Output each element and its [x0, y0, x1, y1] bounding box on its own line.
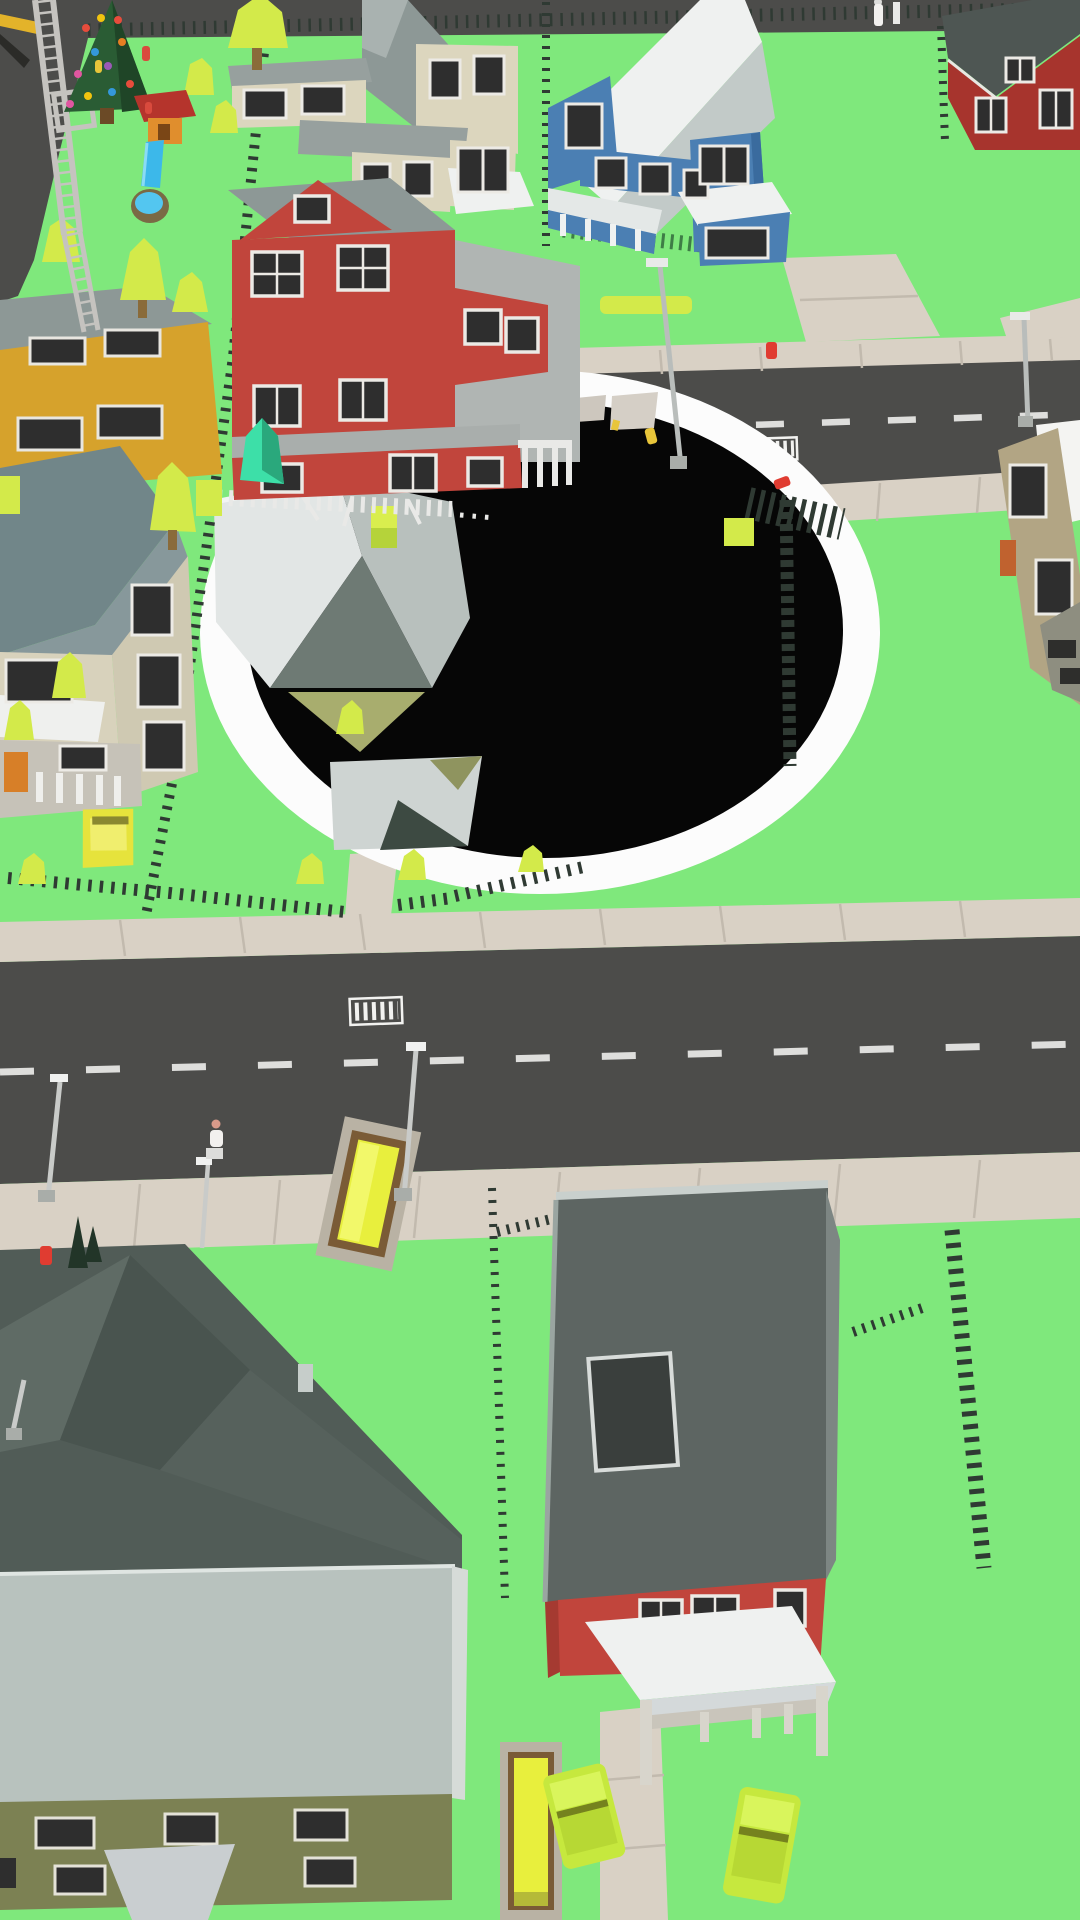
tree-trunk: [100, 108, 114, 124]
orange-door: [1000, 540, 1016, 576]
window: [144, 722, 184, 770]
hydrant-red: [766, 342, 777, 359]
roof-slab-light: [0, 1566, 455, 1806]
window: [105, 330, 160, 356]
yellow-car-parked: [77, 804, 139, 874]
window: [295, 1810, 347, 1840]
car-roof: [731, 1834, 788, 1884]
window: [430, 60, 460, 98]
lime-cube: [196, 480, 222, 516]
flatbed-truck-vertical: [500, 1742, 562, 1920]
window: [36, 1818, 94, 1848]
skylight: [588, 1353, 678, 1470]
window: [596, 158, 626, 188]
playhouse-door: [158, 124, 170, 140]
window: [1036, 560, 1072, 614]
tree-trunk: [138, 300, 147, 318]
person-yellow: [95, 60, 102, 73]
window: [30, 338, 85, 364]
white-post: [893, 2, 900, 24]
window: [566, 104, 602, 148]
window: [474, 56, 504, 94]
tree-trunk: [168, 530, 177, 550]
window: [244, 90, 286, 118]
roof-main: [545, 1188, 828, 1602]
window: [1010, 465, 1046, 517]
bay-window: [706, 228, 768, 258]
window: [305, 1858, 355, 1886]
tree-trunk: [252, 48, 262, 70]
window: [55, 1866, 105, 1894]
hedge-row: [600, 296, 692, 314]
person-red: [145, 102, 152, 114]
gable-window: [295, 196, 329, 222]
window: [165, 1814, 217, 1844]
truck-deck: [514, 1758, 548, 1898]
window: [18, 418, 82, 450]
lime-cube: [724, 518, 754, 546]
window: [132, 585, 172, 635]
window: [138, 655, 180, 707]
pool: [131, 189, 169, 223]
chimney: [298, 1364, 313, 1392]
person-red: [142, 46, 150, 61]
window: [60, 746, 106, 770]
game-canvas[interactable]: [0, 0, 1080, 1920]
pavement-panel: [1060, 668, 1080, 684]
window: [404, 162, 432, 196]
lime-cube: [0, 476, 20, 514]
window: [640, 164, 670, 194]
sidewalk-fragment-b: [576, 395, 606, 422]
wing-window: [506, 318, 538, 352]
truck-deck-shadow: [514, 1892, 548, 1906]
window-partial: [0, 1858, 16, 1888]
hydrant-red: [40, 1246, 52, 1265]
pavement-panel: [1048, 640, 1076, 658]
orange-door: [4, 752, 28, 792]
game-screen[interactable]: [0, 0, 1080, 1920]
pool-water: [135, 192, 163, 214]
window: [302, 86, 344, 114]
window: [98, 406, 162, 438]
window: [468, 458, 502, 486]
wing-window: [465, 310, 501, 344]
